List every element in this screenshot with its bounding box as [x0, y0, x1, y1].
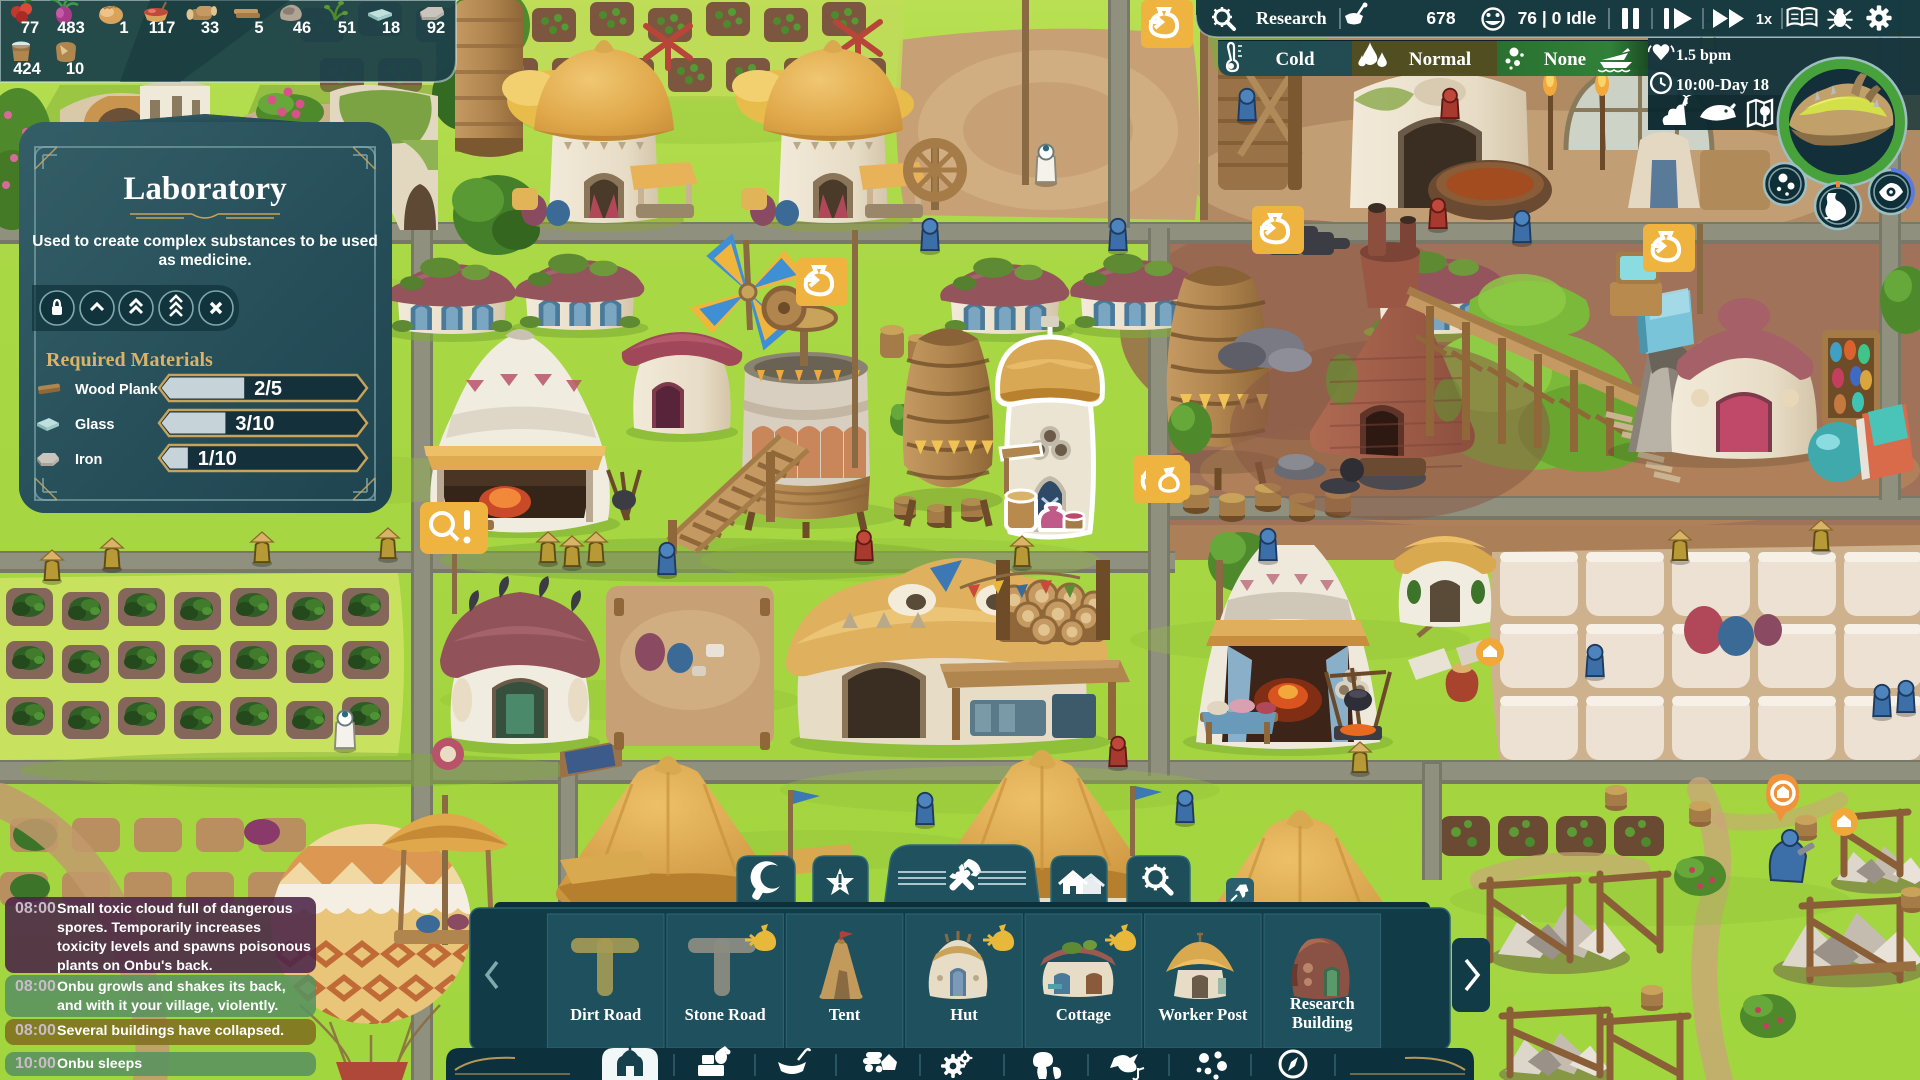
- svg-text:1/10: 1/10: [198, 448, 237, 470]
- svg-text:483: 483: [57, 19, 85, 37]
- svg-text:2/5: 2/5: [254, 378, 282, 400]
- svg-text:1.5 bpm: 1.5 bpm: [1676, 47, 1732, 64]
- svg-text:Normal: Normal: [1409, 49, 1471, 70]
- svg-text:Required Materials: Required Materials: [46, 349, 213, 371]
- svg-text:1x: 1x: [1756, 12, 1772, 28]
- svg-text:Cottage: Cottage: [1056, 1005, 1111, 1024]
- svg-text:None: None: [1544, 49, 1586, 70]
- svg-text:18: 18: [382, 19, 400, 37]
- svg-text:51: 51: [338, 19, 356, 37]
- svg-text:Research: Research: [1256, 8, 1327, 28]
- svg-text:117: 117: [149, 19, 176, 37]
- svg-text:424: 424: [13, 60, 41, 78]
- svg-text:Stone Road: Stone Road: [685, 1005, 766, 1024]
- svg-text:46: 46: [293, 19, 311, 37]
- svg-text:Cold: Cold: [1275, 49, 1315, 70]
- svg-text:76 | 0 Idle: 76 | 0 Idle: [1518, 8, 1597, 28]
- svg-text:as medicine.: as medicine.: [158, 252, 251, 269]
- svg-text:3/10: 3/10: [235, 413, 274, 435]
- svg-text:33: 33: [201, 19, 219, 37]
- svg-text:Dirt Road: Dirt Road: [570, 1005, 641, 1024]
- svg-text:Hut: Hut: [950, 1005, 978, 1024]
- svg-text:Iron: Iron: [75, 452, 102, 468]
- svg-text:Building: Building: [1292, 1013, 1353, 1032]
- svg-text:Tent: Tent: [829, 1005, 861, 1024]
- svg-text:10: 10: [66, 60, 84, 78]
- svg-text:Worker Post: Worker Post: [1158, 1005, 1248, 1024]
- svg-text:1: 1: [119, 19, 128, 37]
- svg-text:Wood Plank: Wood Plank: [75, 382, 159, 398]
- svg-text:92: 92: [427, 19, 445, 37]
- svg-text:Used to create complex substan: Used to create complex substances to be …: [32, 233, 377, 250]
- svg-text:678: 678: [1426, 8, 1455, 28]
- svg-text:5: 5: [254, 19, 263, 37]
- svg-text:Laboratory: Laboratory: [123, 171, 287, 207]
- svg-text:77: 77: [21, 19, 39, 37]
- svg-text:Glass: Glass: [75, 417, 115, 433]
